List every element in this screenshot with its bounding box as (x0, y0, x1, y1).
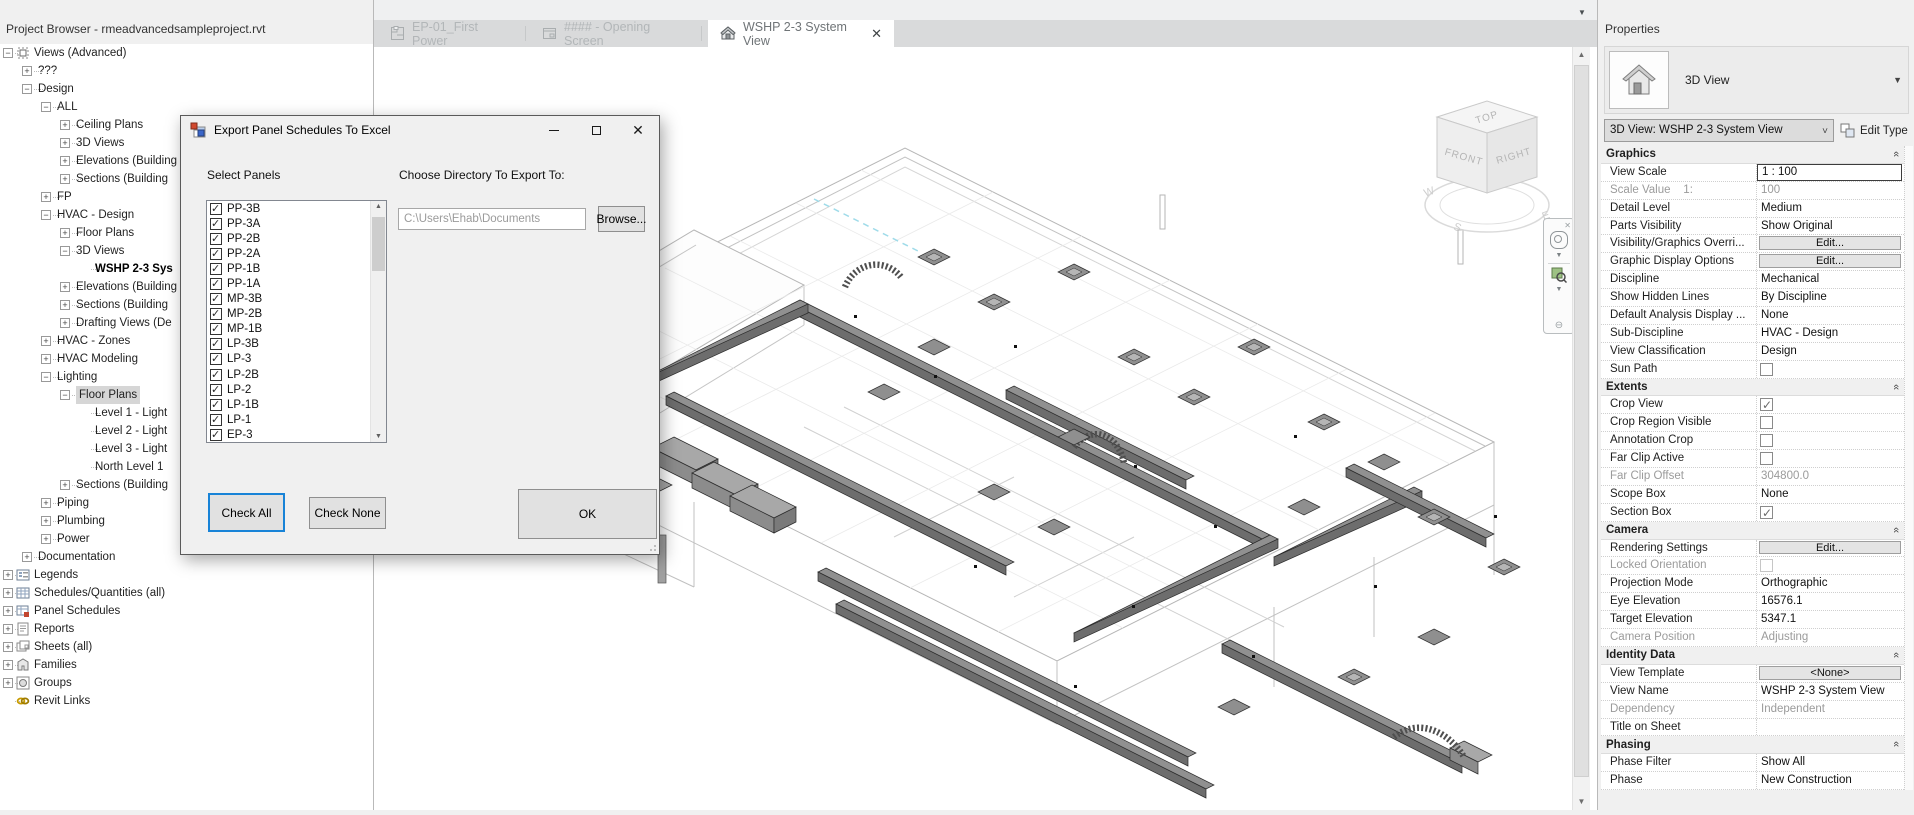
tab-label: EP-01_First Power (412, 20, 514, 48)
minimize-button[interactable] (533, 116, 575, 144)
panel-list-item[interactable]: MP-3B (207, 292, 386, 307)
view-tab[interactable]: #### - Opening Screen (530, 20, 702, 47)
expand-toggle-icon[interactable]: + (3, 660, 13, 670)
tree-item-label: Families (34, 656, 77, 674)
property-value[interactable] (1756, 396, 1904, 413)
property-value[interactable] (1756, 719, 1904, 736)
property-value[interactable]: None (1756, 486, 1904, 503)
property-label: Sun Path (1601, 361, 1756, 378)
expand-toggle-icon[interactable]: + (60, 228, 70, 238)
expand-toggle-icon[interactable]: + (60, 282, 70, 292)
property-checkbox[interactable] (1760, 559, 1773, 572)
expand-toggle-icon[interactable]: + (41, 534, 51, 544)
panel-checkbox[interactable] (210, 384, 222, 396)
tree-item-label: 3D Views (76, 242, 124, 260)
expand-toggle-icon[interactable]: − (41, 102, 51, 112)
link-icon (16, 694, 30, 708)
property-value[interactable]: 304800.0 (1756, 468, 1904, 485)
type-category-label: 3D View (1685, 73, 1729, 87)
steering-wheel-icon[interactable] (1550, 231, 1568, 249)
property-row: Eye Elevation16576.1 (1601, 593, 1904, 611)
properties-panel: Properties 3D View ▼ 3D View: WSHP 2-3 S… (1597, 0, 1914, 810)
property-label: Far Clip Offset (1601, 468, 1756, 485)
expand-toggle-icon[interactable]: + (3, 606, 13, 616)
3d-view-icon (720, 26, 736, 41)
panel-list-item[interactable]: PP-2A (207, 246, 386, 261)
maximize-button[interactable] (575, 116, 617, 144)
view-tab[interactable]: WSHP 2-3 System View✕ (708, 20, 894, 47)
focused-value-field[interactable]: 1 : 100 (1757, 164, 1902, 181)
panel-checkbox[interactable] (210, 233, 222, 245)
expand-toggle-icon[interactable]: + (22, 66, 32, 76)
property-row: Camera PositionAdjusting (1601, 629, 1904, 647)
property-value[interactable]: HVAC - Design (1756, 325, 1904, 342)
tree-item-label: Lighting (57, 368, 97, 386)
tree-item-label: Power (57, 530, 90, 548)
property-row: DisciplineMechanical (1601, 271, 1904, 289)
panel-checkbox[interactable] (210, 218, 222, 230)
tree-item-label: Revit Links (34, 692, 90, 710)
expand-toggle-icon[interactable]: + (3, 570, 13, 580)
property-row: Default Analysis Display ...None (1601, 307, 1904, 325)
property-row: View NameWSHP 2-3 System View (1601, 683, 1904, 701)
property-row: Crop View (1601, 396, 1904, 414)
ok-button[interactable]: OK (518, 489, 657, 539)
expand-toggle-icon[interactable]: + (41, 498, 51, 508)
panel-name: LP-3B (227, 338, 259, 350)
property-label: Camera Position (1601, 629, 1756, 646)
tree-item-label: Plumbing (57, 512, 105, 530)
property-checkbox[interactable] (1760, 452, 1773, 465)
property-row: Sun Path (1601, 361, 1904, 379)
tree-item-label: Elevations (Building (76, 152, 177, 170)
property-label: Projection Mode (1601, 575, 1756, 592)
property-value[interactable]: Edit... (1756, 253, 1904, 270)
expand-toggle-icon[interactable]: + (22, 552, 32, 562)
tab-close-icon[interactable]: ✕ (871, 26, 882, 42)
tree-item-label: ALL (57, 98, 77, 116)
property-value[interactable] (1756, 432, 1904, 449)
tree-item-label: FP (57, 188, 72, 206)
property-value[interactable]: <None> (1756, 665, 1904, 682)
expand-toggle-icon[interactable]: − (22, 84, 32, 94)
report-icon (16, 622, 30, 636)
panel-list-item[interactable]: LP-3 (207, 352, 386, 367)
property-row: Projection ModeOrthographic (1601, 575, 1904, 593)
tree-item-label: HVAC - Design (57, 206, 134, 224)
property-label: Locked Orientation (1601, 557, 1756, 574)
panel-list-item[interactable]: LP-3B (207, 337, 386, 352)
panel-name: MP-2B (227, 308, 262, 320)
property-label: View Name (1601, 683, 1756, 700)
panel-checkbox[interactable] (210, 353, 222, 365)
tree-item[interactable]: −Design (0, 80, 373, 98)
property-value[interactable]: 100 (1756, 182, 1904, 199)
edit-button[interactable]: <None> (1759, 666, 1901, 680)
panel-checkbox[interactable] (210, 429, 222, 441)
property-label: Scope Box (1601, 486, 1756, 503)
tree-item-label: Level 2 - Light (95, 422, 167, 440)
expand-toggle-icon[interactable]: + (60, 138, 70, 148)
property-row: View Scale1 : 100 (1601, 164, 1904, 182)
zoom-icon[interactable] (1551, 267, 1567, 283)
collapse-section-icon[interactable]: « (1890, 151, 1902, 157)
legends-icon (16, 568, 30, 582)
tree-item-label: Level 3 - Light (95, 440, 167, 458)
tree-item[interactable]: +Panel Schedules (0, 602, 373, 620)
property-label: View Scale (1601, 164, 1756, 181)
check-none-button[interactable]: Check None (309, 497, 386, 529)
type-selector-caret-icon[interactable]: ▼ (1893, 75, 1902, 85)
scroll-down-icon[interactable]: ▼ (371, 433, 386, 440)
panel-checkbox[interactable] (210, 248, 222, 260)
tree-item-label: HVAC Modeling (57, 350, 138, 368)
export-panel-schedules-dialog: Export Panel Schedules To Excel ✕ Select… (180, 115, 660, 555)
property-value[interactable] (1756, 504, 1904, 521)
property-label: Default Analysis Display ... (1601, 307, 1756, 324)
tree-item-label: Sections (Building (76, 476, 168, 494)
panel-checkbox[interactable] (210, 369, 222, 381)
expand-toggle-icon[interactable]: − (41, 210, 51, 220)
property-value[interactable]: Medium (1756, 200, 1904, 217)
property-label: View Classification (1601, 343, 1756, 360)
property-label: Section Box (1601, 504, 1756, 521)
properties-scroll-strip[interactable] (1904, 146, 1913, 790)
expand-toggle-icon[interactable]: + (3, 678, 13, 688)
tree-item-label: Reports (34, 620, 74, 638)
viewcube-west-label[interactable]: W (1422, 185, 1436, 200)
tree-item-label: Ceiling Plans (76, 116, 143, 134)
property-value[interactable]: 16576.1 (1756, 593, 1904, 610)
edit-type-icon (1840, 123, 1855, 138)
panel-list-item[interactable]: PP-3B (207, 201, 386, 216)
edit-type-button[interactable]: Edit Type (1840, 119, 1908, 142)
panel-name: LP-2 (227, 384, 251, 396)
tree-item[interactable]: +??? (0, 62, 373, 80)
property-value[interactable]: WSHP 2-3 System View (1756, 683, 1904, 700)
section-header[interactable]: Camera« (1601, 522, 1904, 540)
panel-checkbox[interactable] (210, 293, 222, 305)
property-value[interactable]: Adjusting (1756, 629, 1904, 646)
property-label: Sub-Discipline (1601, 325, 1756, 342)
property-value[interactable]: Orthographic (1756, 575, 1904, 592)
tree-item-label: Sheets (all) (34, 638, 92, 656)
sheets-icon (16, 640, 30, 654)
property-checkbox[interactable] (1760, 398, 1773, 411)
expand-toggle-icon[interactable]: + (41, 192, 51, 202)
tree-item-label: Floor Plans (76, 224, 134, 242)
tree-item-label: ??? (38, 62, 57, 80)
browse-button[interactable]: Browse... (598, 206, 645, 232)
panel-name: LP-1B (227, 399, 259, 411)
canvas-vertical-scrollbar[interactable]: ▲ ▼ (1572, 47, 1590, 810)
panel-name: PP-1A (227, 278, 260, 290)
property-checkbox[interactable] (1760, 363, 1773, 376)
tab-label: WSHP 2-3 System View (743, 20, 860, 48)
viewcube-south-label[interactable]: S (1452, 221, 1463, 235)
property-row: PhaseNew Construction (1601, 772, 1904, 790)
check-all-button[interactable]: Check All (208, 493, 285, 532)
panel-name: PP-2B (227, 233, 260, 245)
tab-label: #### - Opening Screen (564, 20, 690, 48)
tree-item-label: Panel Schedules (34, 602, 120, 620)
navigation-bar: ✕ ▼ ▼ ⊖ (1543, 218, 1575, 334)
property-value[interactable]: Independent (1756, 701, 1904, 718)
type-thumbnail (1609, 51, 1669, 109)
property-label: View Template (1601, 665, 1756, 682)
property-row: Far Clip Active (1601, 450, 1904, 468)
property-value[interactable]: By Discipline (1756, 289, 1904, 306)
groups-icon (16, 676, 30, 690)
scroll-up-icon[interactable]: ▲ (371, 203, 386, 210)
property-checkbox[interactable] (1760, 506, 1773, 519)
property-label: Detail Level (1601, 200, 1756, 217)
property-label: Eye Elevation (1601, 593, 1756, 610)
property-row: View Template<None> (1601, 665, 1904, 683)
tree-item[interactable]: +Schedules/Quantities (all) (0, 584, 373, 602)
tree-item[interactable]: +Families (0, 656, 373, 674)
property-label: Phase (1601, 772, 1756, 789)
tree-item-label: HVAC - Zones (57, 332, 130, 350)
property-label: Far Clip Active (1601, 450, 1756, 467)
property-value[interactable]: Edit... (1756, 235, 1904, 252)
property-checkbox[interactable] (1760, 434, 1773, 447)
expand-toggle-icon[interactable]: − (60, 390, 70, 400)
property-label: Phase Filter (1601, 754, 1756, 771)
tree-item-label: Floor Plans (76, 386, 140, 404)
tree-item-label: Design (38, 80, 74, 98)
property-label: Graphic Display Options (1601, 253, 1756, 270)
property-row: Phase FilterShow All (1601, 754, 1904, 772)
panel-list-item[interactable]: MP-2B (207, 307, 386, 322)
edit-button[interactable]: Edit... (1759, 254, 1901, 268)
scrollbar-thumb[interactable] (1574, 65, 1589, 777)
property-row: Target Elevation5347.1 (1601, 611, 1904, 629)
collapse-section-icon[interactable]: « (1890, 652, 1902, 658)
property-label: Show Hidden Lines (1601, 289, 1756, 306)
expand-toggle-icon[interactable]: − (60, 246, 70, 256)
expand-toggle-icon[interactable]: + (3, 642, 13, 652)
families-icon (16, 658, 30, 672)
scroll-down-icon[interactable]: ▼ (1573, 794, 1590, 810)
tree-item[interactable]: +Sheets (all) (0, 638, 373, 656)
panel-name: PP-1B (227, 263, 260, 275)
sheet-icon (542, 26, 557, 41)
panel-list-item[interactable]: PP-1A (207, 276, 386, 291)
panel-list-item[interactable]: MP-1B (207, 322, 386, 337)
3d-view-house-icon (1619, 60, 1659, 100)
select-panels-label: Select Panels (207, 168, 280, 182)
panel-list-item[interactable]: LP-1 (207, 412, 386, 427)
panel-checkbox[interactable] (210, 278, 222, 290)
edit-button[interactable]: Edit... (1759, 541, 1901, 555)
project-browser-title: Project Browser - rmeadvancedsampleproje… (6, 22, 265, 36)
property-value[interactable] (1756, 450, 1904, 467)
zoom-dropdown-icon[interactable]: ▼ (1556, 286, 1563, 293)
expand-toggle-icon[interactable]: + (41, 516, 51, 526)
panel-checkbox[interactable] (210, 263, 222, 275)
section-header[interactable]: Phasing« (1601, 736, 1904, 754)
tree-item-label: Sections (Building (76, 170, 168, 188)
panel-list-item[interactable]: PP-2B (207, 231, 386, 246)
property-label: Target Elevation (1601, 611, 1756, 628)
tree-item[interactable]: −ALL (0, 98, 373, 116)
tree-item-label: Documentation (38, 548, 115, 566)
property-row: Sub-DisciplineHVAC - Design (1601, 325, 1904, 343)
view-tab-bar: EP-01_First Power#### - Opening ScreenWS… (374, 0, 1597, 47)
property-label: Visibility/Graphics Overri... (1601, 235, 1756, 252)
panel-name: MP-1B (227, 323, 262, 335)
panel-checkbox[interactable] (210, 203, 222, 215)
viewcube[interactable]: W S E TOP FRONT RIGHT (1420, 97, 1560, 262)
property-value[interactable] (1756, 361, 1904, 378)
property-row: Parts VisibilityShow Original (1601, 218, 1904, 236)
property-label: Crop Region Visible (1601, 414, 1756, 431)
views-icon (16, 46, 30, 60)
tree-item-label: North Level 1 (95, 458, 163, 476)
property-label: Crop View (1601, 396, 1756, 413)
property-label: Parts Visibility (1601, 218, 1756, 235)
panel-schedule-icon (16, 604, 30, 618)
section-header[interactable]: Identity Data« (1601, 647, 1904, 665)
collapse-section-icon[interactable]: « (1890, 384, 1902, 390)
expand-toggle-icon[interactable]: + (60, 318, 70, 328)
expand-toggle-icon[interactable]: + (41, 336, 51, 346)
collapse-section-icon[interactable]: « (1890, 741, 1902, 747)
collapse-section-icon[interactable]: « (1890, 527, 1902, 533)
property-value[interactable]: Edit... (1756, 540, 1904, 557)
tree-item[interactable]: +Reports (0, 620, 373, 638)
panel-name: PP-3A (227, 218, 260, 230)
tab-overflow-chevron-icon[interactable]: ▼ (1578, 8, 1586, 17)
panel-list-item[interactable]: LP-2B (207, 367, 386, 382)
panel-checkbox[interactable] (210, 323, 222, 335)
tree-item-label: Sections (Building (76, 296, 168, 314)
panel-checkbox[interactable] (210, 308, 222, 320)
panel-list-item[interactable]: EP-3 (207, 427, 386, 442)
panel-list-item[interactable]: PP-1B (207, 261, 386, 276)
property-value[interactable]: Design (1756, 343, 1904, 360)
property-label: Rendering Settings (1601, 540, 1756, 557)
panel-name: PP-2A (227, 248, 260, 260)
directory-label: Choose Directory To Export To: (399, 168, 565, 182)
tree-item-label: Drafting Views (De (76, 314, 172, 332)
scroll-up-icon[interactable]: ▲ (1573, 47, 1590, 63)
section-header[interactable]: Extents« (1601, 379, 1904, 397)
expand-toggle-icon[interactable]: + (60, 174, 70, 184)
tree-item[interactable]: Revit Links (0, 692, 373, 710)
property-row: Locked Orientation (1601, 557, 1904, 575)
combobox-caret-icon[interactable]: ˅ (1822, 121, 1828, 142)
tree-item[interactable]: −Views (Advanced) (0, 44, 373, 62)
type-selector[interactable]: 3D View ▼ (1604, 46, 1909, 114)
dialog-title: Export Panel Schedules To Excel (214, 123, 391, 137)
expand-toggle-icon[interactable]: + (60, 156, 70, 166)
panel-checkbox[interactable] (210, 399, 222, 411)
property-value[interactable] (1756, 557, 1904, 574)
property-row: Graphic Display OptionsEdit... (1601, 253, 1904, 271)
resize-grip[interactable] (648, 543, 656, 551)
edit-button[interactable]: Edit... (1759, 236, 1901, 250)
floor-plan-icon (390, 26, 405, 41)
tree-item-label: Piping (57, 494, 89, 512)
property-label: Title on Sheet (1601, 719, 1756, 736)
expand-toggle-icon[interactable]: + (60, 120, 70, 130)
view-type-combobox[interactable]: 3D View: WSHP 2-3 System View ˅ (1604, 119, 1834, 142)
navbar-collapse-icon[interactable]: ⊖ (1555, 320, 1563, 331)
panel-name: LP-2B (227, 369, 259, 381)
scrollbar-thumb[interactable] (372, 217, 385, 271)
expand-toggle-icon[interactable]: − (3, 48, 13, 58)
property-value[interactable]: New Construction (1756, 772, 1904, 789)
tree-item-label: WSHP 2-3 Sys (95, 260, 173, 278)
property-row: DependencyIndependent (1601, 701, 1904, 719)
panel-name: MP-3B (227, 293, 262, 305)
tree-item-label: Schedules/Quantities (all) (34, 584, 165, 602)
tree-item-label: 3D Views (76, 134, 124, 152)
panel-checkbox[interactable] (210, 338, 222, 350)
property-value[interactable] (1756, 414, 1904, 431)
property-value[interactable]: Show All (1756, 754, 1904, 771)
property-label: Scale Value 1: (1601, 182, 1756, 199)
navbar-close-icon[interactable]: ✕ (1564, 221, 1571, 230)
expand-toggle-icon[interactable]: + (60, 480, 70, 490)
panel-name: LP-3 (227, 353, 251, 365)
property-row: Visibility/Graphics Overri...Edit... (1601, 235, 1904, 253)
expand-toggle-icon[interactable]: + (3, 588, 13, 598)
property-value[interactable]: 5347.1 (1756, 611, 1904, 628)
property-row: Annotation Crop (1601, 432, 1904, 450)
panel-name: EP-3 (227, 429, 253, 441)
property-value[interactable]: None (1756, 307, 1904, 324)
panel-checkbox[interactable] (210, 414, 222, 426)
tree-item-label: Views (Advanced) (34, 44, 126, 62)
directory-path-field[interactable]: C:\Users\Ehab\Documents (398, 208, 586, 230)
tree-item[interactable]: +Groups (0, 674, 373, 692)
schedule-icon (16, 586, 30, 600)
expand-toggle-icon[interactable]: − (41, 372, 51, 382)
property-label: Dependency (1601, 701, 1756, 718)
tree-item-label: Legends (34, 566, 78, 584)
property-checkbox[interactable] (1760, 416, 1773, 429)
panel-checklist[interactable]: PP-3BPP-3APP-2BPP-2APP-1BPP-1AMP-3BMP-2B… (206, 200, 387, 443)
view-tab[interactable]: EP-01_First Power (378, 20, 526, 47)
panel-list-item[interactable]: PP-3A (207, 216, 386, 231)
tree-item-label: Elevations (Building (76, 278, 177, 296)
property-value[interactable]: 1 : 100 (1756, 164, 1904, 181)
property-row: View ClassificationDesign (1601, 343, 1904, 361)
tree-item[interactable]: +Legends (0, 566, 373, 584)
list-scrollbar[interactable]: ▲▼ (370, 201, 386, 442)
property-row: Scope BoxNone (1601, 486, 1904, 504)
property-value[interactable]: Show Original (1756, 218, 1904, 235)
close-button[interactable]: ✕ (617, 116, 659, 144)
panel-list-item[interactable]: LP-2 (207, 382, 386, 397)
expand-toggle-icon[interactable]: + (41, 354, 51, 364)
section-header[interactable]: Graphics« (1601, 146, 1904, 164)
expand-toggle-icon[interactable]: + (3, 624, 13, 634)
wheel-dropdown-icon[interactable]: ▼ (1556, 252, 1563, 259)
property-row: Scale Value 1:100 (1601, 182, 1904, 200)
panel-list-item[interactable]: LP-1B (207, 397, 386, 412)
property-value[interactable]: Mechanical (1756, 271, 1904, 288)
expand-toggle-icon[interactable]: + (60, 300, 70, 310)
property-label: Discipline (1601, 271, 1756, 288)
property-row: Rendering SettingsEdit... (1601, 540, 1904, 558)
dialog-titlebar[interactable]: Export Panel Schedules To Excel ✕ (181, 116, 659, 144)
tree-item-label: Groups (34, 674, 72, 692)
property-row: Title on Sheet (1601, 719, 1904, 737)
